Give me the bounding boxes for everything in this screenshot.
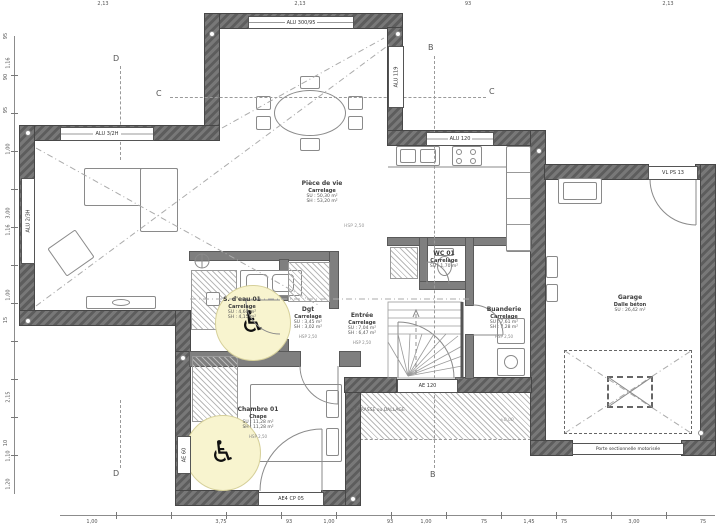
wall-garage-south-a: [531, 441, 572, 455]
hob-burner: [470, 149, 476, 155]
room-label-entrance: Entrée Carrelage SU : 7,04 m² SH : 6,47 …: [340, 312, 384, 345]
dimension-label: 1,00: [420, 519, 431, 525]
section-label-d-top: D: [113, 54, 119, 63]
dimension-label: 1,20: [6, 478, 12, 489]
dimension-label: 1,00: [86, 519, 97, 525]
dimension-label: 3,00: [6, 207, 12, 218]
dimension-label: 93: [465, 1, 471, 7]
dimension-label: 95: [3, 107, 9, 113]
front-door-swing: [398, 322, 454, 378]
partition-wc-south: [420, 282, 472, 289]
dimension-label: 1,00: [6, 289, 12, 300]
dimensions-bottom: 1,003,75931,00931,00751,45753,0075: [0, 519, 723, 527]
dimension-label: 75: [481, 519, 487, 525]
section-label-b-bottom: B: [430, 470, 436, 479]
window-bedroom-west: AE 60: [177, 436, 191, 474]
wall-living-south: [20, 311, 190, 325]
wall-entry-b: [456, 378, 531, 392]
corner-marker: [395, 31, 401, 37]
window-top: ALU 300/95: [248, 16, 354, 29]
attic-hatch: [607, 376, 653, 408]
level-marker: ±0,00: [500, 418, 514, 423]
corner-marker: [25, 318, 31, 324]
room-label-garage: Garage Dalle béton SU : 26,42 m²: [598, 294, 662, 313]
room-label-bathroom: S. d'eau 01 Carrelage SU : 4,60 m² SH : …: [213, 296, 271, 321]
dimension-label: 3,75: [215, 519, 226, 525]
corner-marker: [25, 130, 31, 136]
window-west: ALU 2/3H: [21, 178, 35, 264]
section-line-d-top: [120, 66, 121, 160]
window-kitchen: ALU 120: [426, 132, 494, 146]
dimension-label: 15: [3, 317, 9, 323]
dimension-label: 93: [286, 519, 292, 525]
dimension-label: 10: [3, 440, 9, 446]
corner-marker: [698, 430, 704, 436]
dining-chair: [300, 138, 320, 151]
washing-machine-door: [504, 355, 518, 369]
left-dimension-ticks: [11, 38, 18, 490]
dimension-label: 1,00: [323, 519, 334, 525]
floor-plan-canvas: TERRASSE ou DALLAGE ±0,00 C C B B D D AL…: [0, 0, 723, 529]
utility-box: [546, 284, 558, 302]
corner-marker: [536, 148, 542, 154]
wall-bedroom-west: [176, 352, 190, 505]
dimension-label: 1,16: [6, 224, 12, 235]
dining-chair: [300, 76, 320, 89]
room-label-hallway: Dgt Carrelage SU : 3,45 m² SH : 3,02 m² …: [288, 306, 328, 339]
terrace-area: [345, 392, 531, 440]
kitchen-sink-bowl: [400, 149, 416, 163]
wheelchair-icon: ♿: [210, 438, 237, 468]
room-label-laundry: Buanderie Carrelage SU : 7,61 m² SH : 7,…: [478, 306, 530, 339]
dimension-label: 95: [3, 33, 9, 39]
dimension-label: 75: [700, 519, 706, 525]
pillow: [326, 428, 339, 456]
door-front: AE 120: [397, 379, 458, 393]
dressing-closet: [288, 262, 330, 302]
dimensions-left: 951,1690951,003,001,161,00152,15101,101,…: [0, 0, 12, 529]
garage-service-door-swing: [650, 179, 696, 225]
room-label-bedroom: Chambre 01 Chape SU : 11,28 m² SH : 11,2…: [228, 406, 288, 439]
terrace-label: TERRASSE ou DALLAGE: [352, 408, 405, 413]
dimensions-top: 2,132,13932,13: [0, 1, 723, 9]
dimension-label: 1,00: [6, 143, 12, 154]
partition-sdeau-north: [190, 252, 338, 260]
wall-garage-north-a: [545, 165, 648, 179]
dimension-label: 1,16: [6, 57, 12, 68]
hob-burner: [456, 149, 462, 155]
corner-marker: [180, 355, 186, 361]
sofa-chaise: [140, 168, 178, 232]
dining-chair: [348, 96, 363, 110]
door-garage-service: VL PS 13: [648, 166, 698, 180]
dining-chair: [256, 96, 271, 110]
armchair: [47, 229, 94, 276]
section-label-d-bottom: D: [113, 469, 119, 478]
dimension-label: 2,13: [294, 1, 305, 7]
door-garage-sectional: Porte sectionnelle motorisée: [572, 443, 684, 455]
corner-marker: [209, 31, 215, 37]
kitchen-tall-units: [506, 146, 531, 252]
room-label-wc: WC 01 Carrelage SU : 1,70 m²: [424, 250, 464, 269]
dimension-label: 2,15: [6, 391, 12, 402]
wall-garage-east: [701, 165, 715, 455]
dimension-label: 93: [387, 519, 393, 525]
wall-house-east: [531, 131, 545, 455]
staircase: [388, 302, 462, 378]
section-label-c-right: C: [489, 87, 495, 96]
section-line-c: [170, 97, 486, 98]
partition-buanderie-west-b: [466, 335, 473, 378]
wall-garage-south-b: [682, 441, 715, 455]
dimension-label: 3,00: [628, 519, 639, 525]
pillow: [326, 390, 339, 418]
dining-chair: [348, 116, 363, 130]
dimension-label: 2,13: [662, 1, 673, 7]
utility-box: [546, 256, 558, 278]
section-label-c-left: C: [156, 89, 162, 98]
dimension-label: 1,45: [523, 519, 534, 525]
room-label-living: Pièce de vie Carrelage SU : 50,30 m² SH …: [290, 180, 354, 205]
wall-entry-a: [345, 378, 396, 392]
bottom-dimension-ticks: [62, 512, 712, 519]
door-bedroom-south: AE4 CP 05: [258, 492, 324, 506]
window-west-top: ALU 3/2H: [60, 127, 154, 141]
tv-set: [112, 299, 130, 306]
garage-equipment-inner: [563, 182, 597, 200]
section-label-b-top: B: [428, 43, 434, 52]
dimension-label: 1,10: [6, 450, 12, 461]
living-hsp: HSP 2,50: [344, 224, 364, 229]
hob-burner: [456, 158, 462, 164]
section-line-d-bottom: [120, 400, 121, 468]
dimension-label: 2,13: [97, 1, 108, 7]
dining-chair: [256, 116, 271, 130]
window-dining-east: ALU 119: [388, 46, 404, 108]
dimension-label: 90: [3, 74, 9, 80]
hob-burner: [470, 158, 476, 164]
partition-bedroom-north-b: [340, 352, 360, 366]
partition-dgt-east: [330, 252, 338, 308]
wall-bedroom-south-a: [176, 491, 258, 505]
dimension-label: 75: [561, 519, 567, 525]
entry-closet: [390, 247, 418, 279]
partition-buanderie-west-a: [466, 238, 473, 305]
corner-marker: [350, 496, 356, 502]
